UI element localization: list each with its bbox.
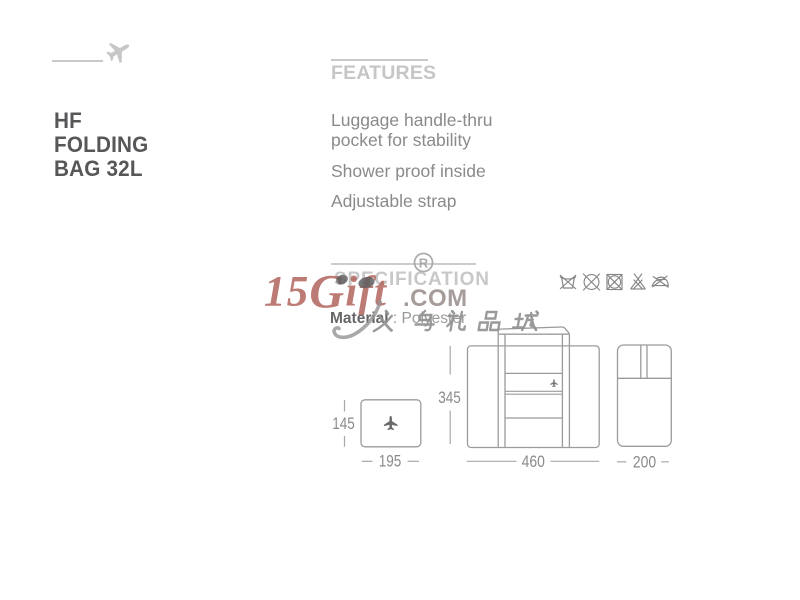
svg-text:460: 460 bbox=[522, 453, 546, 472]
svg-text:195: 195 bbox=[379, 452, 402, 471]
svg-text:200: 200 bbox=[633, 453, 657, 472]
svg-text:345: 345 bbox=[438, 389, 461, 408]
svg-text:R: R bbox=[419, 256, 429, 271]
svg-text:.COM: .COM bbox=[403, 285, 468, 312]
svg-text:15Gift: 15Gift bbox=[264, 266, 388, 319]
svg-text:145: 145 bbox=[332, 415, 355, 434]
